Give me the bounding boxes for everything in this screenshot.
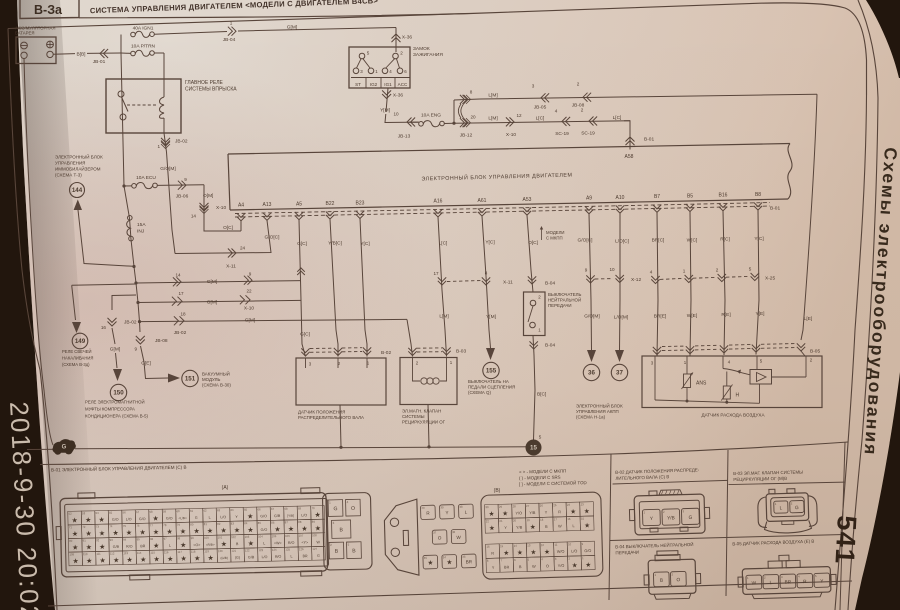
svg-text:L/O: L/O: [571, 549, 577, 553]
svg-text:(А): (А): [222, 485, 229, 491]
svg-text:3: 3: [532, 84, 535, 89]
svg-text:100: 100: [204, 536, 209, 540]
svg-text:РАСПРЕДЕЛИТЕЛЬНОГО ВАЛА: РАСПРЕДЕЛИТЕЛЬНОГО ВАЛА: [298, 415, 364, 420]
svg-text:<W>: <W>: [274, 541, 282, 545]
svg-text:★: ★: [113, 556, 119, 564]
svg-text:144: 144: [72, 187, 83, 194]
svg-text:L: L: [169, 544, 171, 548]
svg-text:BR[C]: BR[C]: [652, 238, 665, 244]
svg-text:★: ★: [99, 543, 105, 551]
svg-text:★: ★: [503, 549, 509, 557]
svg-text:★: ★: [180, 555, 186, 563]
svg-text:A13: A13: [263, 202, 272, 208]
svg-text:112: 112: [110, 551, 115, 555]
svg-text:103: 103: [245, 535, 250, 539]
svg-text:W/O: W/O: [557, 550, 565, 554]
svg-text:Y/B[C]: Y/B[C]: [328, 241, 342, 247]
svg-text:G[E]: G[E]: [141, 361, 151, 367]
svg-text:JB-01: JB-01: [93, 59, 106, 65]
svg-text:1: 1: [230, 21, 233, 26]
svg-text:G: G: [333, 506, 337, 512]
svg-text:G: G: [317, 554, 320, 558]
svg-text:9: 9: [184, 177, 187, 182]
svg-text:(СХЕМА Н-1а): (СХЕМА Н-1а): [576, 415, 606, 420]
svg-text:105: 105: [272, 534, 277, 538]
svg-text:BR[E]: BR[E]: [654, 314, 667, 320]
svg-text:МОДУЛЬ: МОДУЛЬ: [202, 377, 221, 382]
svg-text:B-03: B-03: [456, 349, 466, 355]
svg-text:L/O: L/O: [126, 517, 132, 521]
svg-text:Y[M]: Y[M]: [380, 108, 390, 114]
svg-text:76: 76: [136, 524, 140, 528]
svg-text:ГЛАВНОЕ РЕЛЕ: ГЛАВНОЕ РЕЛЕ: [185, 80, 224, 86]
svg-text:89: 89: [312, 520, 316, 524]
svg-text:G/O[M]: G/O[M]: [584, 314, 599, 320]
svg-text:L/O[C]: L/O[C]: [615, 239, 629, 245]
svg-text:РЕЛЕ ЭЛЕКТРОМАГНИТНОЙ: РЕЛЕ ЭЛЕКТРОМАГНИТНОЙ: [85, 400, 145, 405]
svg-text:ВАКУУМНЫЙ: ВАКУУМНЫЙ: [202, 372, 230, 377]
svg-text:B7: B7: [654, 194, 660, 200]
svg-text:92: 92: [96, 538, 100, 542]
svg-text:L: L: [572, 524, 574, 528]
svg-text:W: W: [532, 565, 536, 569]
svg-text:★: ★: [85, 530, 91, 538]
svg-text:O[C]: O[C]: [223, 225, 233, 231]
svg-text:121: 121: [231, 549, 236, 553]
svg-text:О: О: [351, 506, 355, 512]
svg-text:X-11: X-11: [226, 264, 236, 270]
svg-text:24: 24: [240, 246, 246, 251]
svg-text:91: 91: [83, 538, 87, 542]
svg-text:L[M]: L[M]: [439, 314, 448, 320]
svg-text:150: 150: [113, 390, 124, 397]
svg-text:14: 14: [191, 214, 197, 219]
svg-text:G/B: G/B: [113, 545, 120, 549]
svg-text:ВЫКЛЮЧАТЕЛЬ: ВЫКЛЮЧАТЕЛЬ: [548, 292, 582, 297]
svg-text:B5: B5: [687, 193, 693, 199]
svg-text:( ) - МОДЕЛИ С SRS: ( ) - МОДЕЛИ С SRS: [519, 475, 561, 481]
svg-text:97: 97: [164, 537, 168, 541]
svg-text:G/O: G/O: [166, 516, 173, 520]
svg-text:71: 71: [69, 525, 73, 529]
svg-text:62: 62: [203, 509, 207, 513]
svg-text:12: 12: [541, 543, 545, 547]
svg-text:52: 52: [68, 512, 72, 516]
svg-text:★: ★: [585, 561, 591, 569]
svg-text:39: 39: [440, 505, 444, 509]
svg-text:SC-19: SC-19: [581, 130, 595, 136]
svg-text:★: ★: [220, 527, 226, 535]
svg-text:2: 2: [577, 82, 580, 87]
svg-text:★: ★: [248, 540, 254, 548]
svg-text:★: ★: [517, 549, 523, 557]
svg-text:2: 2: [716, 268, 719, 273]
svg-text:69: 69: [298, 506, 302, 510]
svg-text:19: 19: [527, 518, 531, 522]
svg-text:★: ★: [584, 521, 590, 529]
svg-text:25: 25: [553, 503, 557, 507]
svg-text:★: ★: [126, 556, 132, 564]
svg-text:★: ★: [153, 528, 159, 536]
svg-text:УПРАВЛЕНИЯ: УПРАВЛЕНИЯ: [55, 161, 85, 166]
svg-text:93: 93: [110, 538, 114, 542]
svg-text:G[M]: G[M]: [245, 318, 255, 324]
svg-text:О: О: [438, 535, 442, 540]
svg-text:10: 10: [568, 542, 572, 546]
svg-text:JB-08: JB-08: [155, 338, 168, 344]
svg-text:★: ★: [152, 515, 158, 523]
svg-text:Y/O: Y/O: [558, 564, 565, 568]
svg-text:1: 1: [683, 269, 686, 274]
svg-text:R/O: R/O: [126, 545, 133, 549]
svg-text:JB-02: JB-02: [124, 320, 137, 326]
svg-text:17: 17: [554, 517, 558, 521]
svg-text:110: 110: [83, 552, 88, 556]
svg-text:(В): (В): [494, 488, 501, 494]
svg-text:IG2: IG2: [370, 82, 378, 87]
svg-text:G/B: G/B: [274, 514, 281, 518]
svg-text:★: ★: [570, 508, 576, 516]
svg-text:A4: A4: [238, 203, 244, 209]
svg-text:★: ★: [126, 529, 132, 537]
svg-text:★: ★: [140, 556, 146, 564]
svg-text:16: 16: [567, 517, 571, 521]
svg-text:Y[C]: Y[C]: [485, 240, 494, 246]
svg-text:A61: A61: [478, 198, 487, 204]
svg-text:74: 74: [109, 524, 113, 528]
svg-text:G: G: [195, 516, 198, 520]
svg-text:В-За: В-За: [34, 3, 63, 17]
svg-text:★: ★: [99, 557, 105, 565]
svg-text:G: G: [62, 445, 67, 451]
svg-text:(СХЕМА Q): (СХЕМА Q): [468, 390, 491, 395]
svg-text:R[C]: R[C]: [720, 237, 730, 243]
svg-text:BR: BR: [466, 559, 473, 564]
svg-text:B23: B23: [356, 200, 365, 206]
svg-text:L[C]: L[C]: [536, 115, 545, 121]
svg-text:96: 96: [150, 537, 154, 541]
svg-text:G[M]: G[M]: [207, 300, 217, 306]
svg-text:★: ★: [247, 512, 253, 520]
svg-text:G[M]: G[M]: [287, 25, 297, 31]
svg-text:ПЕДАЛИ СЦЕПЛЕНИЯ: ПЕДАЛИ СЦЕПЛЕНИЯ: [468, 385, 515, 390]
svg-text:15: 15: [581, 517, 585, 521]
svg-text:108: 108: [312, 533, 317, 537]
svg-text:17: 17: [433, 271, 439, 276]
svg-text:107: 107: [299, 534, 304, 538]
svg-text:113: 113: [123, 551, 128, 555]
svg-text:Y/B: Y/B: [516, 526, 523, 530]
svg-text:18: 18: [540, 518, 544, 522]
svg-text:★: ★: [572, 561, 578, 569]
svg-text:A16: A16: [434, 199, 443, 205]
svg-text:55: 55: [109, 511, 113, 515]
svg-text:BR: BR: [303, 554, 308, 558]
svg-text:B16: B16: [719, 193, 728, 199]
svg-text:78: 78: [163, 523, 167, 527]
svg-text:36: 36: [452, 530, 456, 534]
svg-text:★: ★: [72, 530, 78, 538]
svg-text:B-04: B-04: [545, 343, 555, 349]
svg-text:<L/B>: <L/B>: [178, 516, 187, 520]
svg-text:5: 5: [539, 435, 542, 440]
svg-text:L[M]: L[M]: [488, 116, 497, 122]
svg-text:★: ★: [194, 554, 200, 562]
svg-text:4: 4: [650, 270, 653, 275]
svg-text:(G): (G): [235, 556, 240, 560]
svg-text:G/O[C]: G/O[C]: [578, 238, 593, 244]
svg-text:JB-05: JB-05: [534, 105, 547, 111]
svg-text:JB-02: JB-02: [175, 139, 188, 145]
svg-text:ПЕРЕДАЧИ: ПЕРЕДАЧИ: [548, 303, 572, 308]
svg-text:★: ★: [139, 529, 145, 537]
svg-text:126: 126: [299, 547, 304, 551]
svg-text:R: R: [491, 552, 494, 556]
svg-text:★: ★: [86, 557, 92, 565]
svg-text:Y/O: Y/O: [515, 511, 522, 515]
svg-text:17: 17: [178, 291, 184, 296]
svg-text:20: 20: [470, 115, 476, 120]
svg-text:5: 5: [749, 267, 752, 272]
svg-text:R[E]: R[E]: [721, 312, 730, 318]
svg-text:★: ★: [274, 525, 280, 533]
svg-text:★: ★: [180, 541, 186, 549]
svg-text:X-10: X-10: [506, 132, 516, 138]
svg-text:16: 16: [101, 325, 107, 330]
svg-text:20: 20: [513, 518, 517, 522]
svg-text:G/B: G/B: [248, 555, 255, 559]
svg-text:X-10: X-10: [244, 306, 254, 312]
svg-text:G/O: G/O: [584, 549, 591, 553]
svg-text:88: 88: [298, 520, 302, 524]
svg-text:★: ★: [427, 559, 433, 567]
svg-text:В: В: [660, 578, 663, 584]
svg-text:95: 95: [137, 537, 141, 541]
svg-text:9: 9: [585, 268, 588, 273]
svg-text:★: ★: [85, 516, 91, 524]
svg-text:★: ★: [207, 554, 213, 562]
svg-text:68: 68: [284, 507, 288, 511]
svg-text:СИСТЕМЫ ВПРЫСКА: СИСТЕМЫ ВПРЫСКА: [185, 86, 237, 92]
svg-text:R/O: R/O: [275, 555, 282, 559]
svg-text:L/O[M]: L/O[M]: [614, 315, 628, 321]
svg-text:56: 56: [122, 510, 126, 514]
svg-text:1: 1: [157, 144, 160, 149]
svg-text:ВЫКЛЮЧАТЕЛЬ НА: ВЫКЛЮЧАТЕЛЬ НА: [468, 379, 509, 384]
svg-text:JB-12: JB-12: [460, 133, 473, 139]
svg-text:5: 5: [367, 51, 370, 56]
svg-text:75: 75: [123, 524, 127, 528]
svg-text:28: 28: [513, 504, 517, 508]
svg-text:L/O: L/O: [220, 515, 226, 519]
svg-text:40A IGN1: 40A IGN1: [133, 26, 154, 32]
svg-text:★: ★: [488, 510, 494, 518]
svg-text:L: L: [209, 516, 211, 520]
svg-text:БАТАРЕЯ: БАТАРЕЯ: [15, 30, 34, 35]
svg-text:15: 15: [530, 445, 537, 452]
svg-text:2: 2: [581, 108, 584, 113]
svg-text:L[C]: L[C]: [613, 115, 622, 121]
svg-text:BR: BR: [784, 579, 791, 585]
svg-text:BR: BR: [140, 544, 145, 548]
svg-text:ЭЛ.МАГН. КЛАПАН: ЭЛ.МАГН. КЛАПАН: [402, 409, 441, 414]
svg-text:A9: A9: [586, 196, 592, 202]
svg-text:8: 8: [470, 90, 473, 95]
svg-text:В[В]: В[В]: [76, 52, 85, 58]
svg-text:9: 9: [134, 347, 137, 352]
svg-text:ANS: ANS: [696, 381, 707, 387]
svg-text:(СХЕМА В-30): (СХЕМА В-30): [202, 383, 231, 388]
svg-text:94: 94: [123, 538, 127, 542]
svg-text:W: W: [752, 580, 757, 586]
svg-text:10: 10: [393, 112, 399, 117]
svg-text:★: ★: [288, 525, 294, 533]
svg-text:★: ★: [544, 548, 550, 556]
svg-text:10: 10: [609, 267, 615, 272]
svg-text:B[C]: B[C]: [537, 392, 546, 398]
svg-text:★: ★: [153, 542, 159, 550]
svg-text:13: 13: [527, 543, 531, 547]
svg-text:109: 109: [69, 552, 74, 556]
svg-text:[Y/B]: [Y/B]: [287, 514, 294, 518]
svg-text:26: 26: [540, 504, 544, 508]
svg-text:102: 102: [231, 535, 236, 539]
svg-text:10A ENG: 10A ENG: [421, 113, 441, 119]
svg-text:B-01: B-01: [770, 206, 780, 212]
svg-text:79: 79: [177, 523, 181, 527]
svg-text:W[E]: W[E]: [687, 313, 697, 319]
svg-text:★: ★: [315, 525, 321, 533]
svg-text:86: 86: [271, 521, 275, 525]
svg-text:124: 124: [272, 548, 277, 552]
svg-text:73: 73: [96, 525, 100, 529]
svg-text:<Y>: <Y>: [301, 541, 308, 545]
svg-text:★: ★: [71, 516, 77, 524]
svg-text:2: 2: [400, 51, 403, 56]
svg-text:X-11: X-11: [503, 280, 513, 286]
svg-text:ПЕРЕДАЧИ: ПЕРЕДАЧИ: [615, 550, 639, 556]
svg-text:★: ★: [314, 511, 320, 519]
svg-text:★: ★: [207, 527, 213, 535]
svg-text:59: 59: [163, 509, 167, 513]
svg-text:57: 57: [136, 510, 140, 514]
svg-text:87: 87: [285, 520, 289, 524]
svg-text:BR: BR: [504, 565, 510, 569]
svg-text:★: ★: [247, 526, 253, 534]
svg-text:54: 54: [95, 511, 99, 515]
svg-text:L/O: L/O: [301, 513, 307, 517]
svg-text:G: G: [795, 505, 799, 511]
svg-text:40: 40: [421, 506, 425, 510]
svg-text:<О>: <О>: [193, 543, 200, 547]
svg-text:125: 125: [285, 547, 290, 551]
svg-text:36: 36: [588, 370, 595, 377]
svg-text:X-10: X-10: [216, 205, 226, 211]
svg-text:L: L: [263, 542, 265, 546]
svg-text:82: 82: [217, 522, 221, 526]
svg-text:O[M]: O[M]: [203, 193, 213, 199]
svg-text:127: 127: [312, 547, 317, 551]
svg-text:Y/B: Y/B: [667, 515, 675, 521]
svg-text:СИСТЕМЫ: СИСТЕМЫ: [402, 414, 425, 419]
svg-text:G/O: G/O: [139, 517, 146, 521]
svg-text:90: 90: [69, 539, 73, 543]
svg-text:27: 27: [526, 504, 530, 508]
svg-text:61: 61: [190, 509, 194, 513]
svg-text:★: ★: [167, 555, 173, 563]
svg-text:A53: A53: [523, 197, 532, 203]
svg-text:81: 81: [204, 522, 208, 526]
svg-text:JB-06: JB-06: [176, 194, 189, 200]
svg-text:24: 24: [567, 503, 571, 507]
svg-text:G/O: G/O: [260, 514, 267, 518]
svg-text:98: 98: [177, 536, 181, 540]
svg-text:14: 14: [514, 544, 518, 548]
svg-text:A10: A10: [616, 195, 625, 201]
svg-text:G[C]: G[C]: [300, 332, 310, 338]
svg-text:B-05: B-05: [810, 349, 820, 355]
svg-text:70: 70: [311, 506, 315, 510]
svg-text:(G/B): (G/B): [220, 556, 227, 560]
svg-text:77: 77: [150, 523, 154, 527]
svg-text:X-25: X-25: [765, 276, 775, 282]
svg-text:117: 117: [177, 550, 182, 554]
svg-text:L: L: [290, 554, 292, 558]
svg-text:16: 16: [486, 545, 490, 549]
svg-text:★: ★: [98, 516, 104, 524]
svg-text:G[M]: G[M]: [207, 279, 217, 285]
svg-text:R/O: R/O: [288, 541, 295, 545]
svg-text:О: О: [546, 564, 549, 568]
svg-text:37: 37: [433, 531, 437, 535]
svg-text:L: L: [779, 505, 782, 511]
svg-text:(СХЕМА Т-3): (СХЕМА Т-3): [55, 173, 82, 178]
svg-text:ST: ST: [355, 82, 361, 87]
svg-text:14: 14: [175, 273, 181, 278]
svg-text:12: 12: [516, 113, 522, 118]
svg-text:B-02: B-02: [381, 350, 391, 356]
svg-text:★: ★: [72, 557, 78, 565]
svg-text:65: 65: [244, 508, 248, 512]
svg-text:29: 29: [499, 505, 503, 509]
svg-text:X-36: X-36: [402, 35, 412, 41]
svg-text:★: ★: [530, 523, 536, 531]
svg-text:R: R: [558, 510, 561, 514]
svg-text:H: H: [736, 393, 740, 399]
svg-text:122: 122: [245, 548, 250, 552]
svg-text:★: ★: [86, 543, 92, 551]
svg-text:★: ★: [180, 528, 186, 536]
svg-text:22: 22: [486, 519, 490, 523]
svg-text:JB-13: JB-13: [398, 134, 411, 140]
svg-text:B22: B22: [326, 201, 335, 207]
svg-text:21: 21: [499, 519, 503, 523]
svg-text:SC-19: SC-19: [555, 131, 569, 137]
svg-text:★: ★: [446, 558, 452, 566]
svg-text:G: G: [688, 515, 692, 521]
svg-text:НАКАЛИВАНИЯ: НАКАЛИВАНИЯ: [62, 356, 93, 361]
svg-text:111: 111: [96, 552, 101, 556]
svg-text:L[E]: L[E]: [804, 316, 813, 322]
svg-text:JB-02: JB-02: [174, 330, 187, 336]
svg-text:★: ★: [301, 525, 307, 533]
svg-text:JB-04: JB-04: [223, 37, 236, 43]
svg-text:★: ★: [166, 528, 172, 536]
svg-text:L: L: [769, 580, 772, 586]
svg-text:ЭЛЕКТРОННЫЙ БЛОК: ЭЛЕКТРОННЫЙ БЛОК: [55, 153, 103, 160]
svg-text:★: ★: [112, 529, 118, 537]
svg-text:Y[E]: Y[E]: [755, 311, 764, 317]
